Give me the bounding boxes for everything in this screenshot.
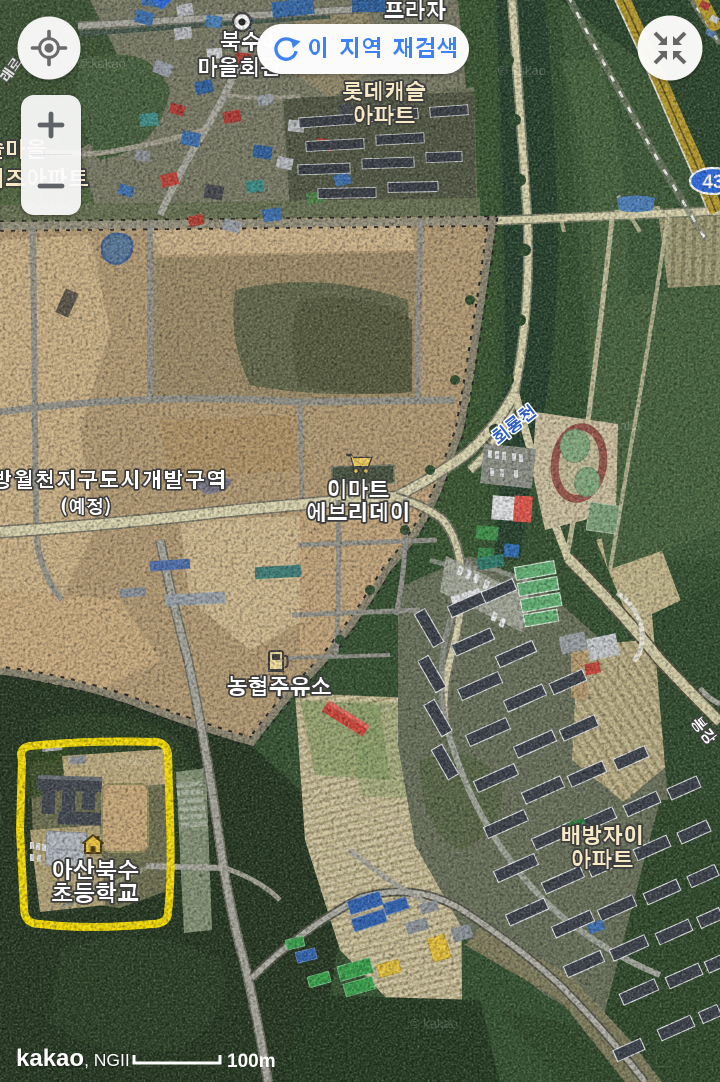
svg-text:kakao, NGII: kakao, NGII [16, 1045, 130, 1072]
svg-text:100m: 100m [227, 1051, 276, 1072]
